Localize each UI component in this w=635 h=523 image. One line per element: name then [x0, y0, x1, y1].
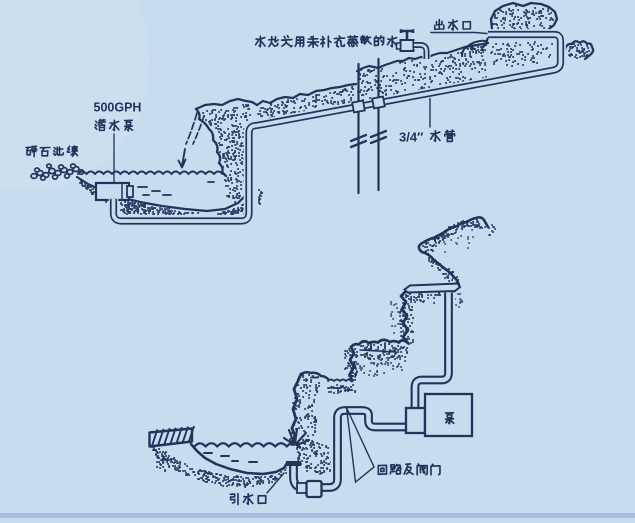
svg-text:500GPH: 500GPH	[94, 101, 142, 115]
svg-text:3/4″: 3/4″	[399, 130, 423, 145]
